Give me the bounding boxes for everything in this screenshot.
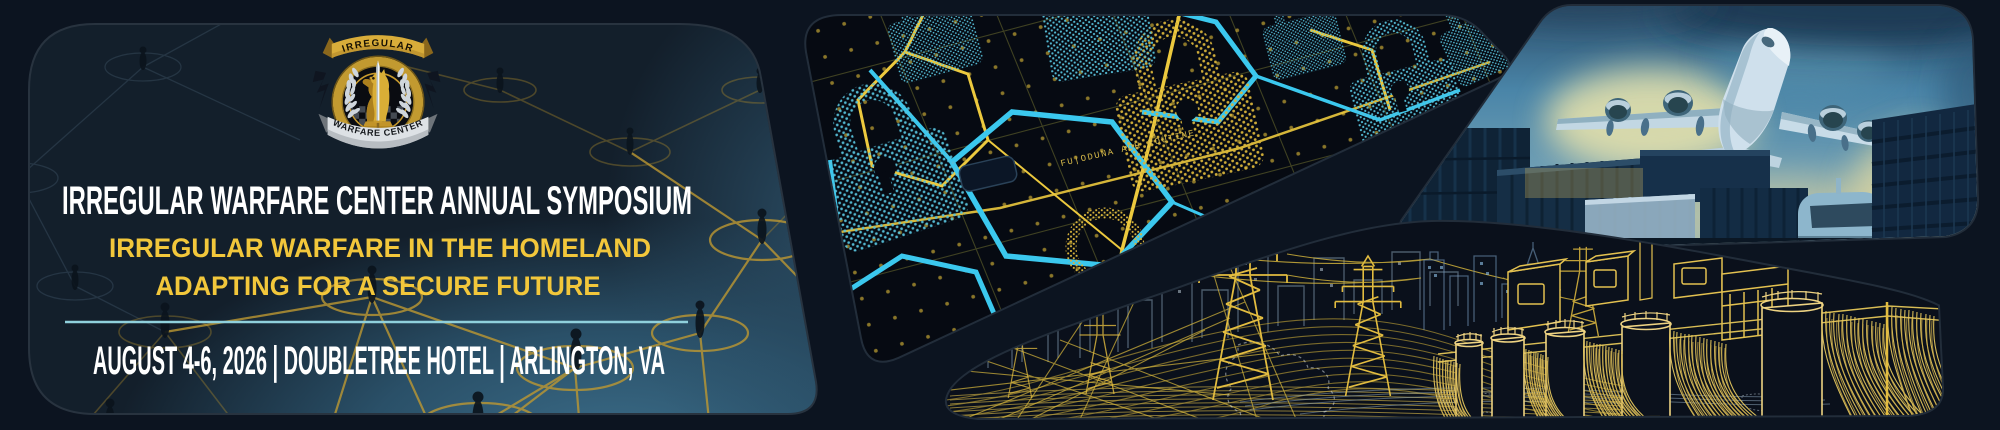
svg-text:AUGUST 4-6, 2026 | DOUBLETREE: AUGUST 4-6, 2026 | DOUBLETREE HOTEL | AR… (93, 339, 665, 383)
svg-text:ADAPTING FOR A SECURE FUTURE: ADAPTING FOR A SECURE FUTURE (156, 271, 601, 301)
svg-text:IRREGULAR WARFARE CENTER ANNUA: IRREGULAR WARFARE CENTER ANNUAL SYMPOSIU… (62, 179, 692, 223)
svg-text:IRREGULAR WARFARE IN THE HOMEL: IRREGULAR WARFARE IN THE HOMELAND (109, 233, 651, 263)
